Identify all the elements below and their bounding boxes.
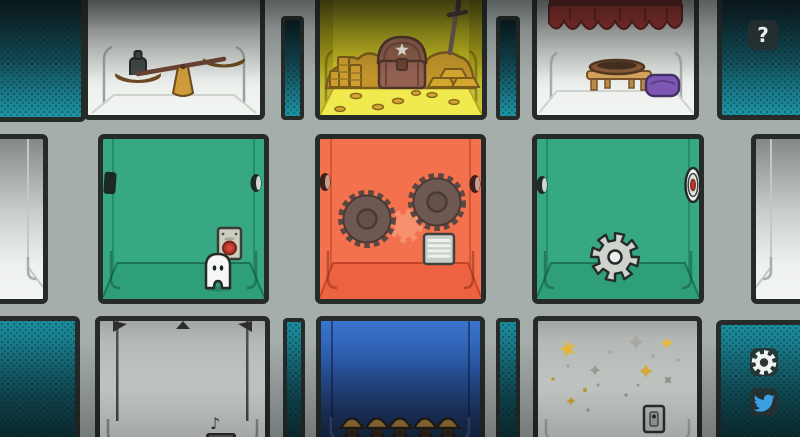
help-button[interactable]: ?: [748, 20, 778, 50]
ceiling-hook-left: [113, 321, 127, 332]
strip-bottom-left-gap: [283, 318, 305, 437]
saw-blade-left: [341, 193, 393, 245]
strip-bottom-right-gap: [496, 318, 520, 437]
partial-room-mid-right[interactable]: [751, 134, 800, 304]
partial-room-mid-left[interactable]: [0, 134, 48, 304]
red-curtain: [549, 0, 682, 29]
partial-room-top-right[interactable]: [717, 0, 800, 120]
door-handle-right: [470, 175, 481, 193]
room-gear[interactable]: [532, 134, 704, 304]
room-crowd[interactable]: [316, 316, 485, 437]
room-hooks[interactable]: ♪: [95, 316, 270, 437]
sword: [449, 0, 466, 53]
twitter-button[interactable]: [750, 388, 778, 416]
game-stage: ♪: [0, 0, 800, 437]
bowl: [590, 60, 644, 74]
treasure-chest: [378, 37, 426, 88]
door-handle: [251, 174, 262, 192]
music-note: ♪: [210, 414, 220, 433]
purple-cushion: [646, 75, 679, 96]
wall-slot: [103, 172, 117, 195]
saw-blade-right: [411, 176, 463, 228]
partial-room-top-left[interactable]: [0, 0, 86, 122]
wall-target: [686, 168, 700, 202]
conical-hat-figures: [341, 419, 459, 437]
ceiling-hook-right: [238, 321, 252, 332]
vent-grille: [424, 234, 454, 264]
room-treasure[interactable]: [315, 0, 487, 120]
door-handle-left: [320, 173, 331, 191]
strip-top-left-gap: [281, 16, 304, 120]
gear-icon: [750, 348, 778, 376]
floor-gear[interactable]: [591, 233, 639, 281]
room-ghost[interactable]: [98, 134, 269, 304]
partial-room-bottom-right[interactable]: [716, 320, 800, 437]
question-mark-icon: ?: [757, 23, 769, 47]
balance-scale: [116, 51, 244, 96]
room-scales[interactable]: [83, 0, 265, 120]
settings-button[interactable]: [750, 348, 778, 376]
ceiling-hook-center: [176, 321, 190, 329]
room-curtain[interactable]: [532, 0, 699, 120]
twitter-bird-icon: [750, 388, 778, 416]
star-sparkles: [551, 334, 679, 412]
room-saws[interactable]: [315, 134, 486, 304]
door-handle: [537, 176, 548, 194]
partial-room-bottom-left[interactable]: [0, 316, 80, 437]
room-stars[interactable]: [533, 316, 702, 437]
strip-top-right-gap: [496, 16, 520, 120]
light-switch[interactable]: [644, 406, 664, 432]
